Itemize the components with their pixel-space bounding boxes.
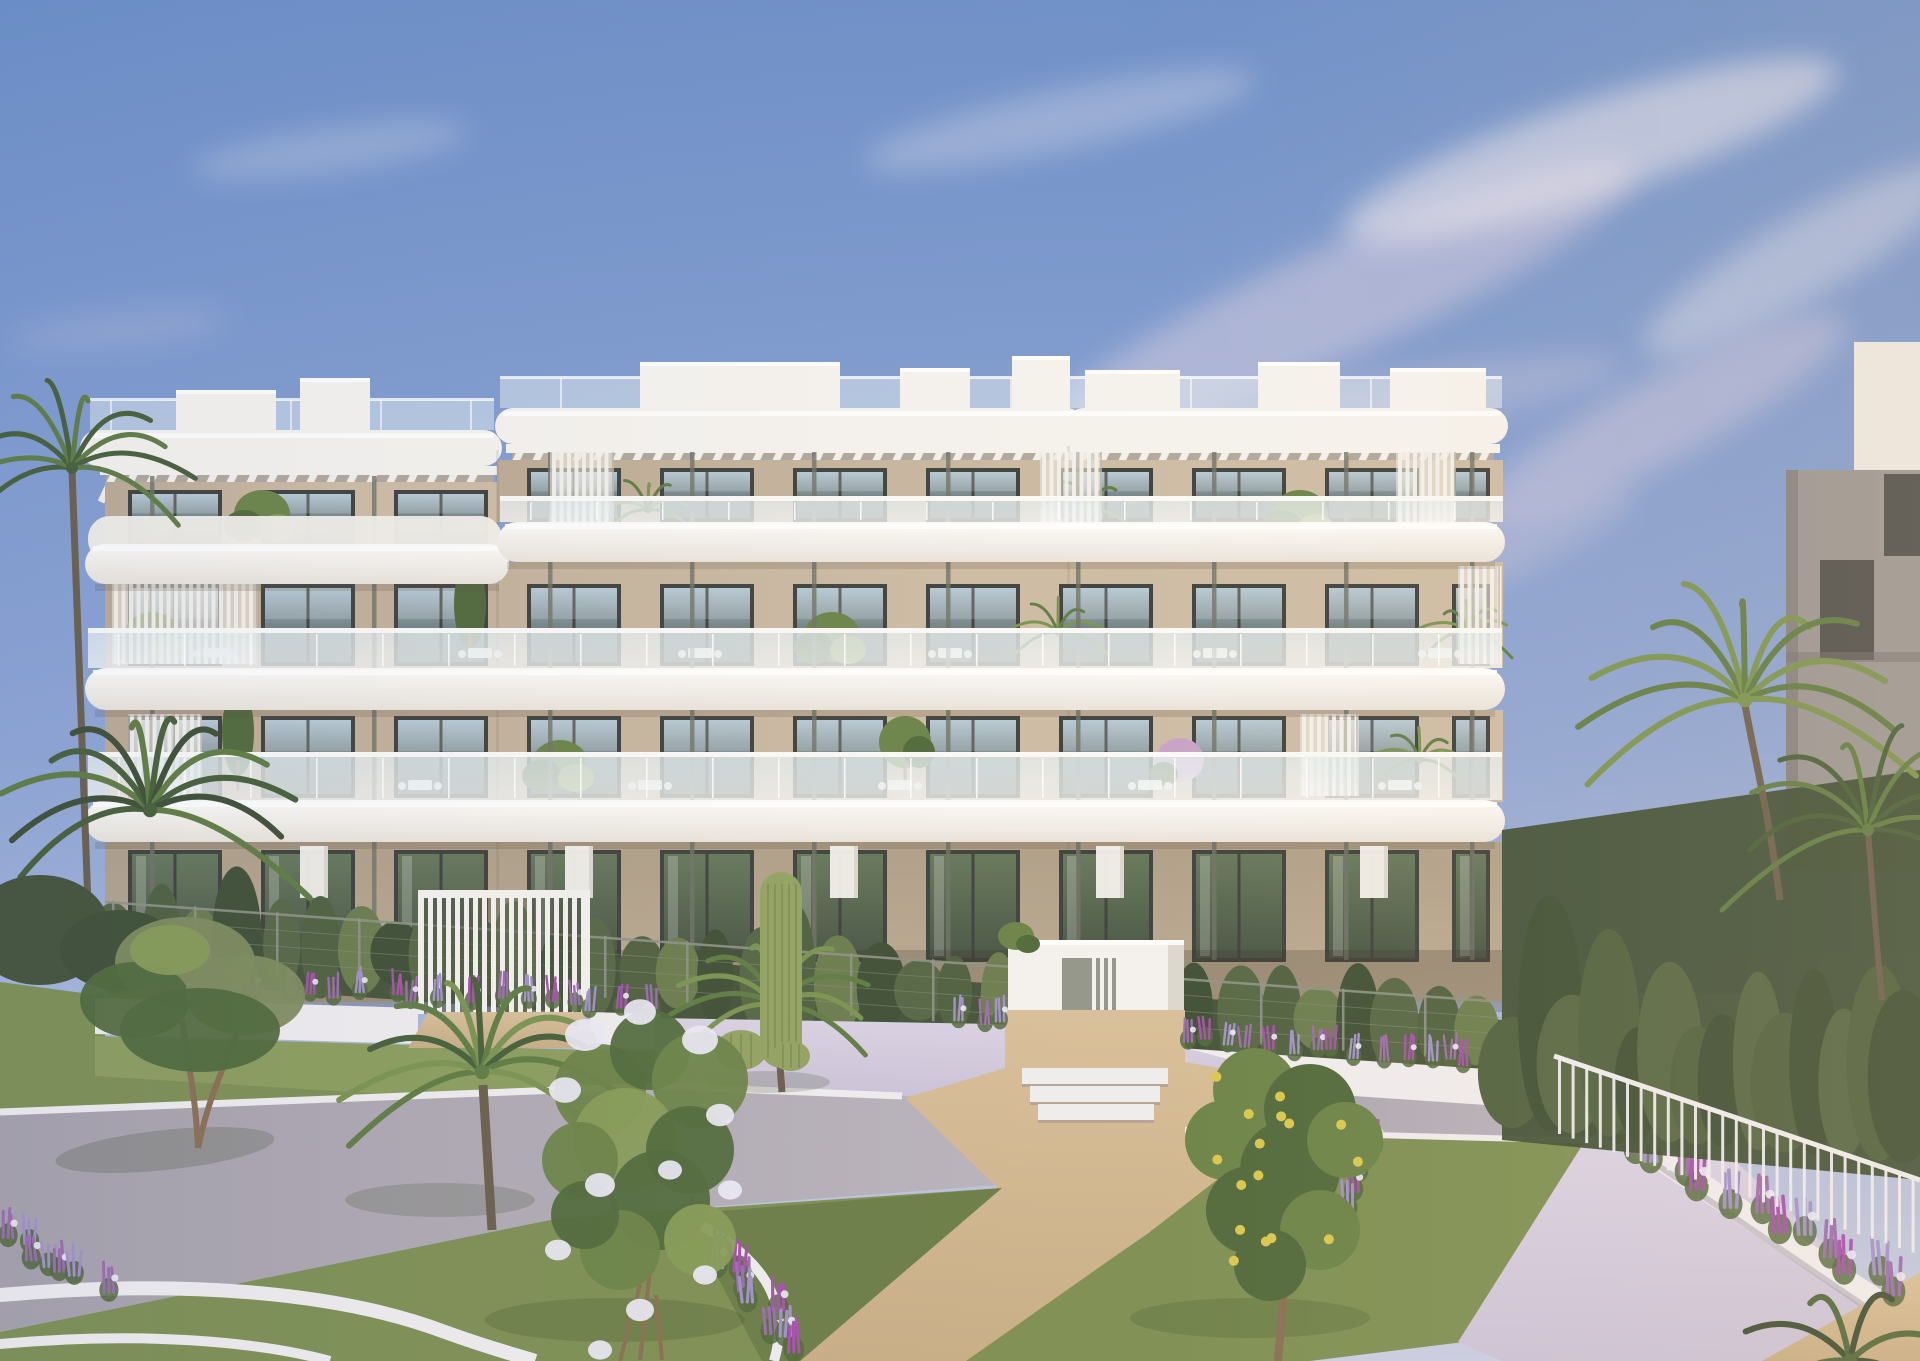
architectural-render: Exterior render of a modern four-storey …	[0, 0, 1920, 1361]
light-haze	[0, 0, 1920, 1361]
render-scene	[0, 0, 1920, 1361]
